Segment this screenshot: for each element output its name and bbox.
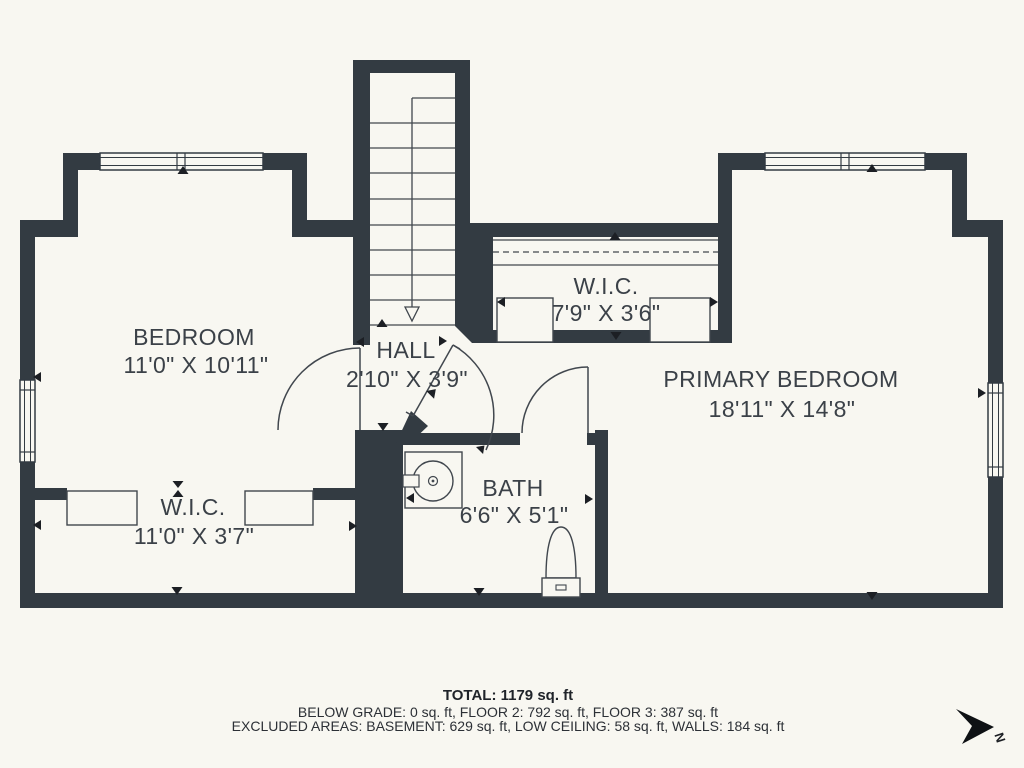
wall-bedroom-right-upper: [292, 153, 307, 229]
wall-primary-step-v: [952, 153, 967, 229]
staircase: [370, 98, 455, 325]
room-dims-bath: 6'6" X 5'1": [460, 503, 569, 528]
footer-excluded-areas: EXCLUDED AREAS: BASEMENT: 629 sq. ft, LO…: [0, 718, 1016, 734]
room-dims-wic-right: 7'9" X 3'6": [552, 301, 661, 326]
window-primary-right: [988, 383, 1003, 477]
footer-total: TOTAL: 1179 sq. ft: [0, 687, 1016, 704]
wall-stair-wic-junction: [455, 223, 493, 343]
wall-bath-top-left: [403, 433, 520, 445]
window-primary-top: [765, 153, 925, 170]
dim-arrow-icon: [173, 481, 184, 488]
window-bedroom-left: [20, 380, 35, 462]
room-label-wic-right: W.I.C.: [573, 274, 638, 299]
wall-step-right: [292, 220, 370, 237]
dim-arrow-icon: [710, 297, 718, 307]
wall-bath-right: [595, 430, 608, 597]
room-dims-wic-left: 11'0" X 3'7": [134, 524, 254, 549]
dim-arrow-icon: [439, 336, 447, 346]
toilet: [542, 527, 580, 597]
wall-wicl-top-a: [35, 488, 67, 500]
wall-center-thick: [355, 430, 403, 608]
wall-wicr-top: [469, 223, 732, 237]
dim-arrow-icon: [378, 423, 389, 431]
wall-stair-top: [353, 60, 470, 73]
room-label-wic-left: W.I.C.: [160, 495, 225, 520]
room-label-bedroom: BEDROOM: [133, 325, 255, 350]
shelf-wicl-right: [245, 491, 313, 525]
room-label-bath: BATH: [482, 476, 543, 501]
wall-bottom-exterior: [20, 593, 1003, 608]
shelf-wicr-left: [497, 298, 553, 342]
dim-arrow-icon: [377, 319, 388, 327]
room-label-primary: PRIMARY BEDROOM: [663, 367, 898, 392]
wall-stair-left: [353, 73, 370, 345]
stair-down-arrow-icon: [405, 307, 419, 321]
room-dims-primary: 18'11" X 14'8": [709, 397, 856, 422]
door-primary-bedroom: [522, 367, 588, 433]
wall-wicr-right: [718, 153, 732, 343]
dim-arrow-icon: [585, 494, 593, 504]
room-dims-hall: 2'10" X 3'9": [346, 367, 468, 392]
room-dims-bedroom: 11'0" X 10'11": [124, 353, 269, 378]
shelf-wicl-left: [67, 491, 137, 525]
closet-rod: [493, 240, 718, 265]
wall-bedroom-left-upper: [63, 153, 78, 229]
wall-stair-right: [455, 73, 470, 225]
window-bedroom-top: [100, 153, 263, 170]
dim-arrow-icon: [978, 388, 986, 398]
room-label-hall: HALL: [376, 338, 435, 363]
